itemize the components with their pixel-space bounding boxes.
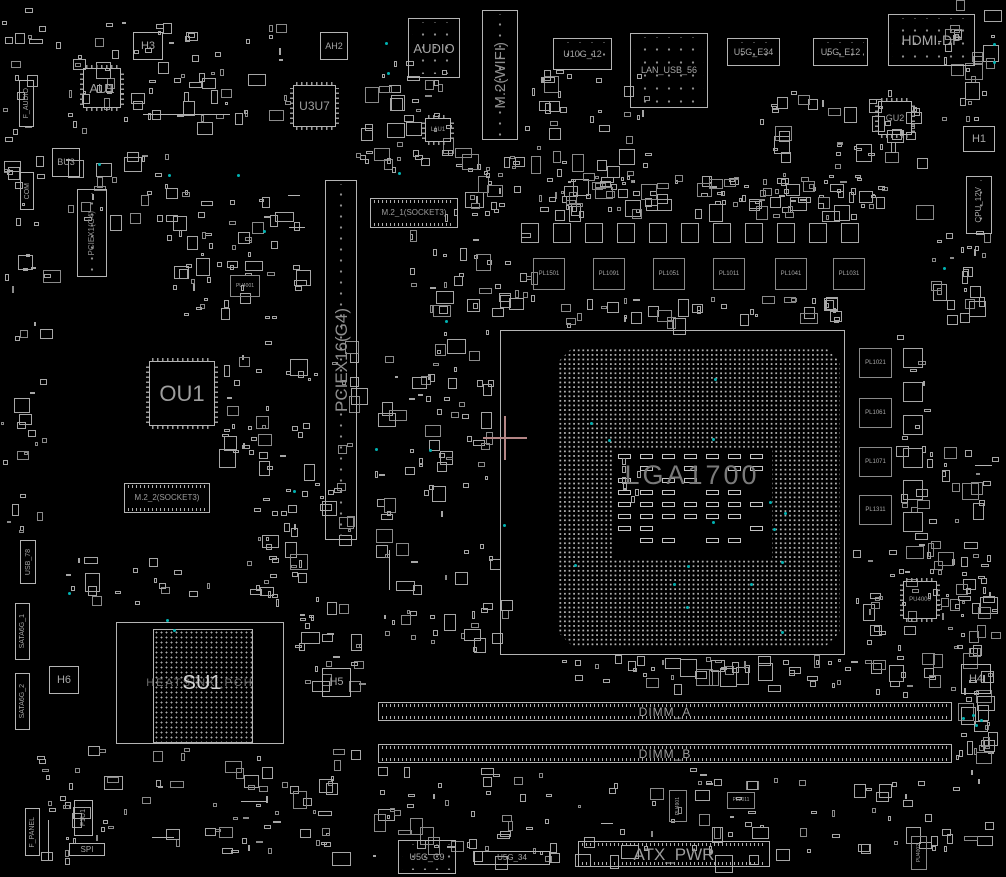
highlighted-pad — [673, 583, 676, 586]
component-outline — [387, 158, 391, 164]
component-outline — [776, 849, 790, 861]
vrm-choke — [903, 415, 923, 435]
component-outline — [425, 80, 434, 90]
vrm-choke — [553, 223, 571, 243]
component-outline — [308, 378, 311, 381]
f1u1-header[interactable]: F1U1 — [74, 800, 93, 836]
component-outline — [948, 627, 953, 630]
component-outline — [869, 609, 871, 615]
u5g-e34-connector[interactable]: U5G_E34 — [727, 38, 780, 66]
pu4001-box[interactable]: PU4001 — [230, 275, 260, 297]
component-outline — [158, 786, 163, 788]
pl2011-box[interactable]: PL2011 — [727, 792, 755, 809]
component-outline — [561, 304, 571, 312]
component-outline — [745, 822, 752, 827]
test-point — [429, 449, 432, 452]
component-outline — [481, 443, 490, 450]
component-outline — [567, 74, 572, 79]
component-outline — [575, 660, 581, 666]
component-outline — [549, 197, 556, 202]
component-outline — [201, 201, 213, 206]
component-outline — [272, 316, 277, 319]
test-point — [962, 717, 965, 720]
pl1501-box[interactable]: PL1501 — [533, 258, 565, 290]
component-label: SATA6G_1 — [19, 614, 26, 648]
cavity-cap — [750, 502, 763, 507]
component-outline — [16, 218, 21, 226]
component-outline — [486, 330, 489, 335]
cavity-cap — [640, 502, 653, 507]
atx-pwr-connector[interactable]: ATX_PWR — [578, 841, 770, 867]
component-outline — [315, 483, 320, 486]
component-outline — [966, 116, 970, 122]
component-outline — [225, 102, 228, 105]
component-label: F_AUDIO — [20, 81, 33, 126]
component-outline — [844, 107, 857, 123]
pu4901-box[interactable]: PU4901 — [669, 790, 687, 822]
component-outline — [791, 200, 796, 202]
component-outline — [637, 115, 640, 120]
component-outline — [443, 254, 447, 257]
test-point — [166, 619, 169, 622]
component-outline — [258, 434, 272, 446]
component-outline — [531, 156, 541, 174]
cavity-cap — [662, 478, 675, 483]
component-outline — [189, 591, 198, 597]
silk-line — [975, 465, 992, 466]
component-outline — [888, 816, 891, 821]
component-outline — [925, 814, 932, 822]
component-outline — [598, 110, 602, 113]
pl1041-box[interactable]: PL1041 — [775, 258, 807, 290]
component-outline — [280, 455, 286, 457]
test-point — [168, 174, 171, 177]
component-outline — [262, 767, 273, 779]
component-outline — [599, 125, 610, 132]
component-outline — [395, 376, 398, 378]
board-canvas[interactable]: F_AUDIOCOMH3AU1AH2U3U7BU3PCIEX1(G4)PU400… — [0, 0, 1006, 877]
h1-box[interactable]: H1 — [963, 126, 995, 152]
component-outline — [221, 89, 232, 98]
component-outline — [499, 203, 505, 207]
component-outline — [258, 537, 261, 541]
component-outline — [431, 640, 435, 644]
f-audio-header[interactable]: F_AUDIO — [19, 80, 34, 127]
component-outline — [977, 836, 993, 846]
chip-pu4000[interactable]: PU4000 — [903, 581, 937, 619]
pl1021-box[interactable]: PL1021 — [859, 348, 892, 378]
component-outline — [800, 828, 807, 837]
hdmi-dp-connector[interactable]: HDMI-DP — [888, 14, 975, 66]
component-label: PU4001 — [231, 276, 259, 296]
component-outline — [407, 804, 414, 808]
component-label: BU3 — [53, 149, 79, 176]
cavity-cap — [622, 458, 626, 465]
component-outline — [652, 801, 656, 806]
test-point — [98, 163, 101, 166]
component-outline — [451, 412, 459, 418]
component-outline — [232, 424, 235, 429]
cavity-cap — [640, 490, 653, 495]
component-outline — [196, 307, 202, 310]
component-outline — [187, 236, 198, 250]
test-point — [375, 448, 378, 451]
cavity-cap — [728, 502, 741, 507]
component-outline — [7, 170, 13, 175]
component-outline — [179, 230, 182, 237]
component-outline — [224, 429, 230, 432]
component-outline — [272, 594, 278, 598]
component-outline — [930, 569, 934, 574]
component-outline — [73, 121, 77, 128]
component-outline — [275, 811, 279, 815]
component-outline — [978, 576, 985, 579]
pl1031-box[interactable]: PL1031 — [833, 258, 865, 290]
component-outline — [184, 748, 190, 752]
component-outline — [430, 287, 436, 289]
com-header[interactable]: COM — [20, 172, 34, 210]
component-outline — [784, 297, 796, 303]
vrm-choke — [841, 223, 859, 243]
component-outline — [953, 787, 960, 791]
component-outline — [968, 101, 972, 105]
cavity-cap — [684, 502, 697, 507]
component-outline — [12, 286, 14, 293]
component-outline — [248, 785, 255, 790]
vrm-choke — [903, 448, 923, 468]
cavity-cap — [684, 478, 697, 483]
test-point — [68, 592, 71, 595]
component-outline — [983, 737, 990, 747]
component-outline — [410, 268, 415, 275]
component-outline — [645, 153, 652, 156]
component-outline — [579, 211, 584, 218]
chip-au1[interactable]: AU1 — [83, 68, 121, 108]
usb-78-header[interactable]: USB_78 — [20, 540, 36, 584]
component-outline — [608, 207, 612, 212]
component-outline — [65, 858, 70, 865]
component-outline — [868, 560, 873, 562]
component-outline — [643, 673, 647, 677]
component-outline — [856, 598, 859, 604]
pu4002-box[interactable]: PU4002 — [911, 836, 927, 870]
component-outline — [960, 98, 966, 106]
component-outline — [615, 655, 622, 664]
component-outline — [508, 821, 513, 831]
component-outline — [439, 453, 445, 458]
component-outline — [897, 335, 904, 340]
component-outline — [838, 659, 841, 662]
component-outline — [867, 640, 872, 645]
component-outline — [706, 781, 712, 784]
component-outline — [721, 304, 727, 309]
component-label: PU4002 — [912, 837, 926, 869]
component-outline — [964, 542, 978, 549]
h3-box[interactable]: H3 — [133, 32, 163, 60]
component-outline — [481, 608, 488, 613]
chip-pins — [152, 426, 212, 429]
component-outline — [1, 422, 4, 425]
component-outline — [651, 831, 653, 837]
component-outline — [142, 156, 145, 162]
bu3-box[interactable]: BU3 — [52, 148, 80, 177]
m2-2-socket3-slot[interactable]: M.2_2(SOCKET3) — [124, 483, 210, 513]
component-outline — [770, 197, 781, 208]
test-point — [503, 524, 506, 527]
component-outline — [201, 115, 204, 122]
cavity-cap — [684, 466, 697, 471]
chip-gu2[interactable]: GU2 — [878, 101, 912, 135]
component-outline — [494, 209, 499, 213]
component-outline — [971, 482, 983, 495]
component-outline — [578, 805, 581, 808]
component-outline — [397, 157, 401, 161]
component-outline — [298, 573, 307, 583]
component-outline — [269, 35, 273, 39]
chip-pins — [428, 115, 448, 118]
component-outline — [932, 846, 936, 851]
pciex1-slot[interactable]: PCIEX1(G4) — [77, 189, 107, 277]
highlighted-pad — [773, 528, 776, 531]
component-outline — [967, 741, 973, 755]
component-outline — [851, 214, 857, 220]
dimm-a-slot[interactable]: DIMM_A — [378, 702, 952, 721]
component-outline — [763, 188, 772, 196]
component-outline — [866, 788, 872, 791]
component-outline — [390, 808, 395, 812]
component-outline — [904, 626, 916, 635]
component-outline — [487, 185, 503, 197]
m2-1-socket3-slot[interactable]: M.2_1(SOCKET3) — [370, 198, 458, 228]
component-outline — [455, 572, 468, 585]
component-outline — [838, 191, 844, 198]
component-outline — [971, 770, 973, 775]
component-outline — [811, 811, 817, 814]
chip-pins — [451, 121, 454, 139]
sata6g-1-connector[interactable]: SATA6G_1 — [15, 603, 30, 660]
component-outline — [133, 568, 138, 573]
component-outline — [903, 692, 908, 698]
chip-l1u1[interactable]: L1U1 — [425, 118, 451, 142]
component-outline — [969, 301, 986, 317]
component-label: AU1 — [84, 69, 120, 107]
component-outline — [641, 184, 657, 200]
component-outline — [962, 601, 965, 604]
pl1311-box[interactable]: PL1311 — [859, 495, 892, 525]
component-outline — [891, 142, 896, 153]
component-outline — [966, 697, 972, 702]
component-outline — [262, 197, 270, 208]
component-outline — [500, 831, 511, 837]
pl1091-box[interactable]: PL1091 — [593, 258, 625, 290]
highlighted-pad — [769, 501, 772, 504]
component-outline — [807, 849, 811, 853]
component-outline — [251, 437, 257, 441]
component-label: USB_78 — [25, 549, 32, 575]
component-outline — [620, 829, 625, 835]
component-label: OU1 — [150, 362, 214, 425]
component-outline — [60, 796, 66, 801]
pl1051-box[interactable]: PL1051 — [653, 258, 685, 290]
component-outline — [439, 306, 448, 314]
component-outline — [12, 504, 19, 516]
component-outline — [365, 159, 369, 164]
component-outline — [498, 173, 503, 177]
component-outline — [880, 144, 883, 150]
component-outline — [562, 161, 567, 164]
h4-box[interactable]: H4 — [961, 664, 991, 694]
h6-box[interactable]: H6 — [49, 666, 79, 694]
component-label: PL1311 — [860, 496, 891, 524]
component-outline — [992, 609, 998, 612]
cavity-cap — [618, 502, 631, 507]
component-label: COM — [21, 173, 33, 209]
component-outline — [293, 265, 300, 270]
component-outline — [419, 464, 423, 467]
cavity-cap — [623, 482, 627, 489]
component-label: GU2 — [879, 102, 911, 134]
component-outline — [301, 632, 320, 644]
component-outline — [800, 313, 818, 324]
component-outline — [973, 554, 979, 558]
component-outline — [929, 675, 941, 688]
chip-u3u7[interactable]: U3U7 — [293, 85, 336, 127]
audio-connector[interactable]: AUDIO — [408, 18, 460, 78]
component-outline — [101, 827, 105, 832]
component-outline — [786, 184, 800, 196]
component-label: PL2011 — [728, 793, 754, 808]
component-outline — [259, 452, 268, 459]
component-outline — [892, 782, 897, 787]
component-outline — [269, 110, 284, 121]
chip-pins — [86, 108, 118, 111]
component-outline — [437, 462, 447, 472]
spi-header[interactable]: SPI — [69, 843, 105, 856]
chip-pins — [881, 98, 909, 101]
component-outline — [222, 848, 233, 854]
u5g-34-connector[interactable]: U5G_34 — [474, 851, 550, 865]
component-outline — [697, 183, 712, 197]
component-outline — [854, 784, 866, 798]
pch-su1[interactable]: HEATSINK_PCHSU1 — [116, 622, 284, 744]
component-outline — [374, 814, 386, 832]
component-outline — [803, 181, 815, 192]
component-outline — [822, 211, 840, 222]
component-outline — [869, 204, 874, 209]
component-outline — [774, 778, 778, 783]
component-outline — [133, 101, 143, 110]
component-outline — [931, 836, 938, 846]
component-outline — [759, 199, 765, 201]
component-outline — [247, 561, 252, 566]
component-outline — [460, 248, 467, 261]
cavity-cap — [640, 514, 653, 519]
component-outline — [566, 200, 576, 205]
component-outline — [268, 848, 272, 854]
u10g-12-connector[interactable]: U10G_12 — [553, 38, 612, 70]
cpu-12v-connector[interactable]: CPU_12V — [966, 176, 992, 234]
component-outline — [916, 205, 934, 220]
component-outline — [876, 197, 885, 209]
component-label: F1U1 — [80, 809, 87, 826]
component-outline — [861, 204, 865, 208]
component-outline — [37, 512, 43, 521]
component-outline — [742, 195, 746, 202]
component-outline — [292, 426, 298, 431]
component-outline — [159, 583, 166, 589]
component-outline — [469, 351, 480, 361]
component-label: USB_78 — [21, 541, 35, 583]
sata6g-2-connector[interactable]: SATA6G_2 — [15, 673, 30, 730]
component-outline — [272, 558, 279, 563]
component-outline — [309, 615, 314, 618]
component-outline — [224, 300, 229, 308]
component-outline — [221, 308, 230, 320]
pl1061-box[interactable]: PL1061 — [859, 398, 892, 428]
u5g-e12-connector[interactable]: U5G_E12 — [813, 38, 868, 66]
component-outline — [956, 0, 965, 11]
component-outline — [485, 476, 488, 480]
component-outline — [229, 221, 236, 225]
f-panel-header[interactable]: F_PANEL — [25, 808, 40, 856]
component-outline — [924, 409, 931, 412]
component-outline — [265, 316, 270, 319]
chip-pins — [912, 104, 915, 132]
component-outline — [550, 121, 558, 126]
component-label: PL1091 — [594, 259, 624, 289]
chip-ou1[interactable]: OU1 — [149, 361, 215, 426]
component-outline — [321, 842, 327, 845]
m2-wifi-slot[interactable]: M.2(WIFI) — [482, 10, 518, 140]
pciex16-slot[interactable]: PCIEX16(G4) — [325, 180, 357, 540]
ah2-box[interactable]: AH2 — [320, 32, 348, 60]
component-label: H3 — [134, 33, 162, 59]
component-outline — [957, 645, 963, 649]
component-outline — [550, 853, 560, 863]
vrm-choke — [521, 223, 539, 243]
component-outline — [426, 396, 431, 402]
component-outline — [752, 827, 769, 839]
component-outline — [709, 670, 719, 686]
u5g-c9-connector[interactable]: U5G_C9 — [398, 840, 456, 874]
component-outline — [510, 156, 515, 159]
component-outline — [92, 596, 102, 606]
component-outline — [404, 115, 414, 122]
pl1011-box[interactable]: PL1011 — [713, 258, 745, 290]
component-outline — [577, 313, 582, 321]
pl1071-box[interactable]: PL1071 — [859, 447, 892, 477]
component-outline — [413, 585, 422, 595]
component-outline — [410, 611, 417, 616]
lan-usb-56-connector[interactable]: LAN_USB_56 — [630, 33, 708, 108]
component-outline — [401, 615, 411, 625]
component-outline — [967, 246, 972, 249]
component-outline — [467, 436, 472, 442]
component-outline — [290, 359, 308, 376]
component-outline — [942, 117, 947, 121]
component-outline — [326, 783, 338, 795]
component-outline — [561, 191, 564, 194]
component-outline — [392, 620, 395, 625]
component-outline — [418, 394, 423, 396]
component-outline — [379, 474, 385, 476]
component-outline — [37, 756, 45, 760]
dimm-b-slot[interactable]: DIMM_B — [378, 744, 952, 763]
h5-box[interactable]: H5 — [322, 668, 351, 697]
component-outline — [248, 845, 250, 851]
component-outline — [830, 311, 842, 322]
component-outline — [433, 630, 438, 636]
